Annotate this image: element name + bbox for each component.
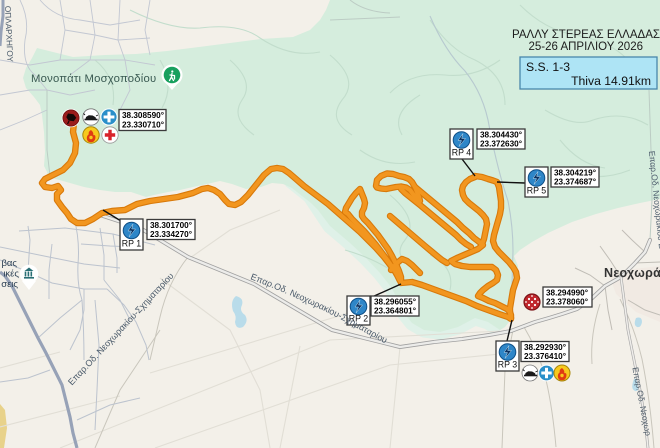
svg-text:23.376410°: 23.376410°	[524, 352, 566, 361]
svg-text:23.378060°: 23.378060°	[546, 298, 588, 307]
svg-text:RP 1: RP 1	[122, 239, 142, 249]
svg-text:23.372630°: 23.372630°	[480, 140, 522, 149]
svg-text:Μονοπάτι Μοσχοποδίου: Μονοπάτι Μοσχοποδίου	[31, 73, 156, 85]
svg-text:38.308590°: 38.308590°	[122, 111, 164, 120]
svg-text:38.294990°: 38.294990°	[546, 289, 588, 298]
svg-text:βας: βας	[1, 258, 17, 269]
svg-text:23.334270°: 23.334270°	[150, 230, 192, 239]
svg-text:RP 4: RP 4	[452, 148, 472, 158]
svg-text:38.301700°: 38.301700°	[150, 221, 192, 230]
svg-text:RP 3: RP 3	[498, 360, 518, 370]
svg-text:38.304219°: 38.304219°	[554, 169, 596, 178]
svg-text:38.296055°: 38.296055°	[374, 298, 416, 307]
svg-text:25-26 ΑΠΡΙΛΙΟΥ 2026: 25-26 ΑΠΡΙΛΙΟΥ 2026	[528, 41, 643, 53]
svg-text:σεις: σεις	[1, 279, 18, 290]
svg-text:23.330710°: 23.330710°	[122, 121, 164, 130]
svg-text:S.S. 1-3: S.S. 1-3	[526, 60, 570, 74]
svg-text:38.304430°: 38.304430°	[480, 131, 522, 140]
svg-text:RP 5: RP 5	[527, 186, 547, 196]
svg-text:ικές: ικές	[3, 269, 19, 280]
svg-text:Νεοχωρά: Νεοχωρά	[604, 266, 660, 280]
svg-text:23.364801°: 23.364801°	[374, 307, 416, 316]
svg-text:23.374687°: 23.374687°	[554, 178, 596, 187]
svg-text:38.292930°: 38.292930°	[524, 343, 566, 352]
svg-text:Thiva 14.91km: Thiva 14.91km	[571, 74, 651, 88]
svg-text:ΡΑΛΛΥ ΣΤΕΡΕΑΣ ΕΛΛΑΔΑΣ: ΡΑΛΛΥ ΣΤΕΡΕΑΣ ΕΛΛΑΔΑΣ	[512, 29, 660, 41]
